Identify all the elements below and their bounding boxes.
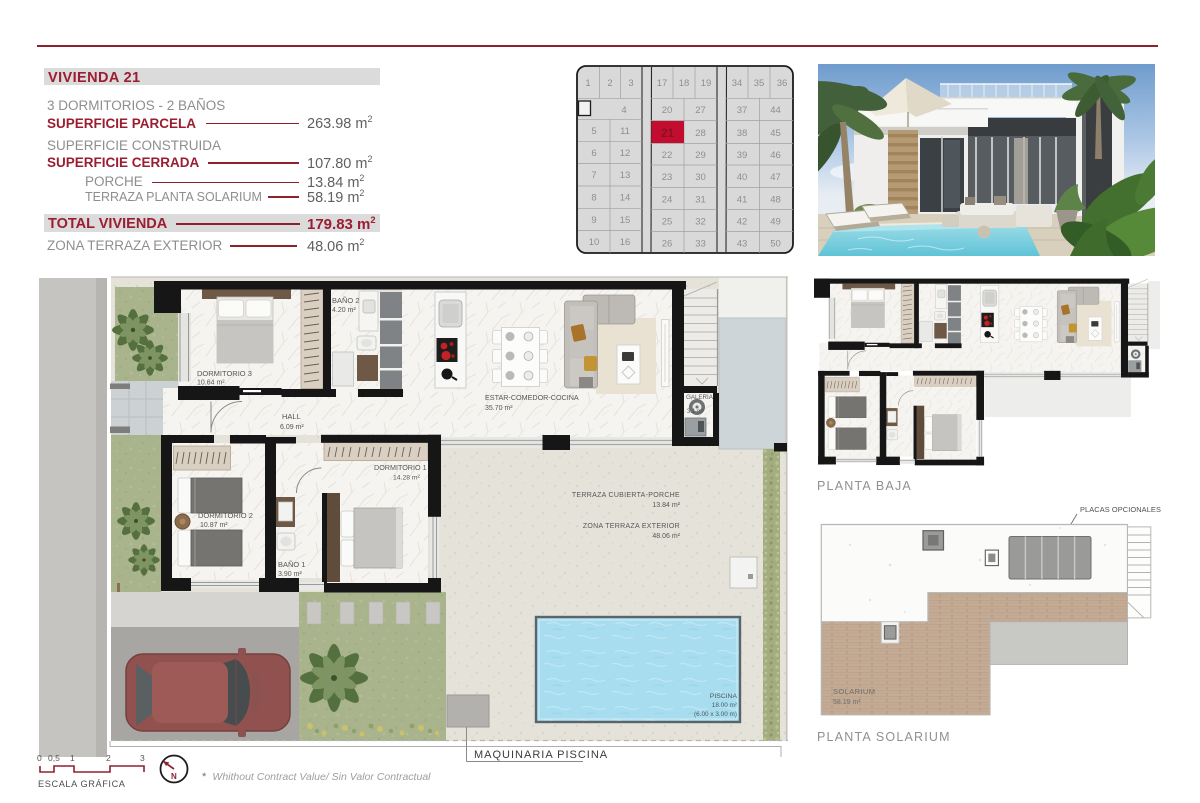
svg-text:ESTAR-COMEDOR-COCINA: ESTAR-COMEDOR-COCINA bbox=[485, 393, 579, 402]
svg-text:11: 11 bbox=[620, 126, 630, 137]
svg-text:3.1 m²: 3.1 m² bbox=[687, 409, 704, 415]
svg-text:DORMITORIO 1: DORMITORIO 1 bbox=[374, 463, 427, 472]
svg-text:10.87 m²: 10.87 m² bbox=[200, 522, 228, 529]
svg-text:PISCINA: PISCINA bbox=[710, 693, 738, 700]
svg-text:58.19 m²: 58.19 m² bbox=[833, 699, 861, 706]
svg-text:27: 27 bbox=[695, 105, 706, 116]
svg-text:HALL: HALL bbox=[282, 412, 301, 421]
svg-text:0,5: 0,5 bbox=[48, 753, 60, 763]
svg-text:50: 50 bbox=[770, 239, 781, 250]
svg-text:22: 22 bbox=[662, 150, 673, 161]
svg-text:10: 10 bbox=[589, 237, 600, 248]
svg-text:14.28 m²: 14.28 m² bbox=[393, 475, 421, 482]
svg-text:26: 26 bbox=[662, 239, 673, 250]
svg-text:25: 25 bbox=[662, 217, 673, 228]
svg-text:37: 37 bbox=[737, 105, 748, 116]
svg-text:17: 17 bbox=[657, 78, 668, 89]
svg-text:3.90 m²: 3.90 m² bbox=[278, 571, 302, 578]
svg-text:ESCALA GRÁFICA: ESCALA GRÁFICA bbox=[38, 779, 126, 789]
svg-text:4: 4 bbox=[621, 105, 626, 116]
svg-text:6: 6 bbox=[591, 148, 596, 159]
svg-text:41: 41 bbox=[737, 195, 748, 206]
svg-text:47: 47 bbox=[770, 172, 781, 183]
svg-text:TERRAZA CUBIERTA-PORCHE: TERRAZA CUBIERTA-PORCHE bbox=[572, 492, 680, 499]
svg-text:DORMITORIO 2: DORMITORIO 2 bbox=[198, 511, 253, 520]
svg-text:4.20 m²: 4.20 m² bbox=[332, 307, 356, 314]
svg-text:15: 15 bbox=[620, 215, 631, 226]
svg-text:DORMITORIO 3: DORMITORIO 3 bbox=[197, 369, 252, 378]
svg-text:18: 18 bbox=[679, 78, 690, 89]
svg-text:33: 33 bbox=[695, 239, 706, 250]
svg-text:28: 28 bbox=[695, 128, 706, 139]
svg-text:32: 32 bbox=[695, 217, 706, 228]
svg-text:0: 0 bbox=[37, 753, 42, 763]
svg-text:10.64 m²: 10.64 m² bbox=[197, 380, 225, 387]
svg-text:34: 34 bbox=[732, 78, 743, 89]
svg-text:ZONA TERRAZA EXTERIOR: ZONA TERRAZA EXTERIOR bbox=[583, 523, 680, 530]
svg-text:31: 31 bbox=[695, 195, 706, 206]
svg-text:BAÑO 2: BAÑO 2 bbox=[332, 296, 360, 305]
svg-text:PLACAS OPCIONALES: PLACAS OPCIONALES bbox=[1080, 505, 1161, 514]
svg-text:14: 14 bbox=[620, 193, 631, 204]
svg-text:(6.00 x 3.00 m): (6.00 x 3.00 m) bbox=[694, 711, 737, 718]
svg-text:9: 9 bbox=[591, 215, 596, 226]
svg-text:SOLARIUM: SOLARIUM bbox=[833, 687, 875, 696]
svg-text:N: N bbox=[171, 772, 177, 781]
svg-text:1: 1 bbox=[70, 753, 75, 763]
svg-text:18.00 m²: 18.00 m² bbox=[712, 702, 737, 709]
svg-text:35.70 m²: 35.70 m² bbox=[485, 405, 513, 412]
svg-text:19: 19 bbox=[701, 78, 712, 89]
svg-text:BAÑO 1: BAÑO 1 bbox=[278, 560, 306, 569]
svg-text:12: 12 bbox=[620, 148, 631, 159]
svg-text:49: 49 bbox=[770, 217, 781, 228]
svg-text:8: 8 bbox=[591, 193, 596, 204]
svg-text:2: 2 bbox=[607, 78, 612, 89]
svg-text:MAQUINARIA PISCINA: MAQUINARIA PISCINA bbox=[474, 749, 608, 761]
svg-text:21: 21 bbox=[661, 126, 675, 140]
svg-text:43: 43 bbox=[737, 239, 748, 250]
svg-text:38: 38 bbox=[737, 128, 748, 139]
svg-text:46: 46 bbox=[770, 150, 781, 161]
svg-text:20: 20 bbox=[662, 105, 673, 116]
svg-text:7: 7 bbox=[591, 170, 596, 181]
svg-text:3: 3 bbox=[140, 753, 145, 763]
svg-text:5: 5 bbox=[591, 126, 596, 137]
svg-text:24: 24 bbox=[662, 195, 673, 206]
svg-text:1: 1 bbox=[585, 78, 590, 89]
svg-text:13.84 m²: 13.84 m² bbox=[652, 502, 680, 509]
svg-text:40: 40 bbox=[737, 172, 748, 183]
svg-text:23: 23 bbox=[662, 172, 673, 183]
svg-text:16: 16 bbox=[620, 237, 631, 248]
svg-text:3: 3 bbox=[628, 78, 633, 89]
svg-text:30: 30 bbox=[695, 172, 706, 183]
svg-text:35: 35 bbox=[754, 78, 765, 89]
svg-text:29: 29 bbox=[695, 150, 706, 161]
svg-text:48: 48 bbox=[770, 195, 781, 206]
svg-text:36: 36 bbox=[777, 78, 788, 89]
svg-text:48.06 m²: 48.06 m² bbox=[652, 533, 680, 540]
svg-text:44: 44 bbox=[770, 105, 781, 116]
svg-text:GALERIA: GALERIA bbox=[686, 394, 714, 401]
svg-text:2: 2 bbox=[106, 753, 111, 763]
svg-text:13: 13 bbox=[620, 170, 631, 181]
svg-text:42: 42 bbox=[737, 217, 748, 228]
svg-text:39: 39 bbox=[737, 150, 748, 161]
svg-text:45: 45 bbox=[770, 128, 781, 139]
svg-text:6.09 m²: 6.09 m² bbox=[280, 424, 304, 431]
